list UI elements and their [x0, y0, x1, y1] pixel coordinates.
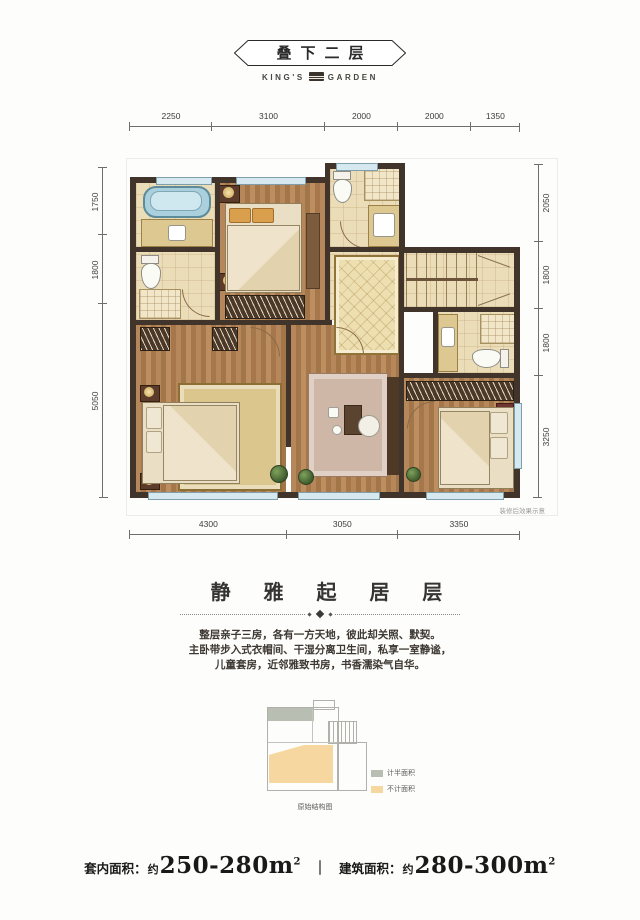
plant	[406, 467, 421, 482]
bookcase	[387, 377, 399, 475]
lamp-icon	[223, 187, 234, 198]
wardrobe	[140, 327, 170, 351]
schematic-outline	[337, 742, 367, 791]
dim-label: 3100	[212, 111, 325, 127]
dim-chain-top: 2250 3100 2000 2000 1350	[130, 111, 520, 127]
wall	[399, 307, 520, 312]
shower-area	[364, 167, 400, 201]
floor-title: 叠下二层	[234, 40, 406, 66]
brand-right: GARDEN	[328, 73, 378, 82]
legend: 计半面积 不计面积	[371, 768, 415, 800]
floor-title-frame: 叠下二层	[234, 40, 406, 66]
legend-swatch-excluded	[371, 786, 383, 793]
window	[156, 177, 212, 185]
divider-ornament-icon	[316, 610, 324, 618]
bed-blanket	[440, 411, 490, 485]
schematic-caption: 原始结构图	[240, 802, 390, 812]
build-area-value: 280-300m2	[415, 852, 556, 879]
stair-rail	[406, 278, 478, 281]
wall	[215, 177, 220, 325]
dim-label: 2000	[325, 111, 398, 127]
legend-row: 不计面积	[371, 784, 415, 794]
dim-tick	[533, 497, 542, 498]
schematic-outline	[267, 707, 339, 791]
dim-tick	[519, 123, 520, 132]
pillow	[229, 208, 251, 223]
dim-label: 1800	[538, 309, 553, 376]
bathtub-basin	[150, 191, 202, 211]
wall	[130, 247, 220, 252]
pillow	[146, 431, 162, 453]
bed-blanket	[163, 405, 237, 481]
render-note: 装修后效果示意	[420, 505, 545, 515]
dim-label: 2000	[398, 111, 471, 127]
shower-area	[480, 314, 515, 344]
divider-ornament-icon	[328, 612, 332, 616]
window	[148, 492, 278, 500]
wall	[325, 163, 330, 325]
dim-label: 2250	[130, 111, 212, 127]
window	[426, 492, 504, 500]
description: 整层亲子三房，各有一方天地，彼此却关照、默契。 主卧带步入式衣帽间、干湿分离卫生…	[0, 628, 640, 673]
window	[298, 492, 380, 500]
dim-chain-right: 2050 1800 1800 3250	[538, 165, 553, 498]
wall	[286, 325, 291, 447]
window	[236, 177, 306, 185]
footer-divider: ｜	[313, 858, 327, 878]
sink-basin	[168, 225, 186, 241]
plant	[270, 465, 288, 483]
dim-label: 1800	[538, 242, 553, 309]
window	[514, 403, 522, 469]
inner-area-label: 套内面积：	[84, 858, 147, 877]
plant	[298, 469, 314, 485]
pillow	[146, 407, 162, 429]
brand-line: KING'SGARDEN	[0, 72, 640, 82]
schematic-outline	[313, 700, 335, 710]
wall	[325, 247, 404, 252]
area-footer: 套内面积： 约 250-280m2 ｜ 建筑面积： 约 280-300m2	[0, 852, 640, 879]
approx-mark: 约	[403, 861, 414, 877]
dim-label: 2050	[538, 165, 553, 242]
wall	[130, 177, 136, 498]
dim-label: 3250	[538, 376, 553, 498]
dim-tick	[519, 531, 520, 540]
pillow	[252, 208, 274, 223]
dim-label: 3050	[287, 519, 398, 535]
dotted-line	[180, 614, 305, 615]
pillow	[490, 437, 508, 459]
approx-mark: 约	[148, 861, 159, 877]
build-area-label: 建筑面积：	[339, 858, 402, 877]
window	[336, 163, 378, 171]
schematic-line	[268, 742, 337, 743]
wall	[433, 312, 438, 377]
dim-label: 5050	[88, 304, 103, 498]
schematic-stairs	[328, 721, 357, 744]
wardrobe	[406, 381, 514, 401]
description-line: 主卧带步入式衣帽间、干湿分离卫生间，私享一室静谧，	[0, 643, 640, 658]
inner-area-value: 250-280m2	[160, 852, 301, 879]
brand-left: KING'S	[262, 73, 305, 82]
section-divider	[180, 611, 460, 617]
toilet-tank	[500, 349, 509, 368]
header: 叠下二层	[0, 40, 640, 66]
dresser	[306, 213, 320, 289]
legend-label: 不计面积	[387, 784, 415, 794]
wall	[399, 163, 405, 253]
desk-item	[328, 407, 339, 418]
divider-ornament-icon	[307, 612, 311, 616]
brand-logo-icon	[309, 72, 324, 81]
schematic-line	[312, 708, 313, 742]
dotted-line	[335, 614, 460, 615]
bed-blanket	[227, 225, 300, 291]
shower-area	[139, 289, 181, 319]
dim-label: 1350	[471, 111, 520, 127]
description-line: 儿童套房，近邻雅致书房，书香濡染气自华。	[0, 658, 640, 673]
dim-label: 3350	[398, 519, 520, 535]
dim-tick	[99, 497, 108, 498]
brochure-page: 叠下二层 KING'SGARDEN 2250 3100 2000 2000 13…	[0, 0, 640, 920]
wall	[130, 320, 332, 325]
wall	[399, 373, 520, 378]
legend-swatch-half	[371, 770, 383, 777]
chair	[358, 415, 380, 437]
dim-chain-bottom: 4300 3050 3350	[130, 519, 520, 535]
dim-label: 1800	[88, 235, 103, 304]
description-line: 整层亲子三房，各有一方天地，彼此却关照、默契。	[0, 628, 640, 643]
lamp-icon	[144, 387, 154, 397]
sink-basin	[373, 213, 395, 237]
desk-item	[332, 425, 342, 435]
wardrobe	[212, 327, 238, 351]
floor-plan	[130, 155, 520, 505]
dim-label: 4300	[130, 519, 287, 535]
wall	[402, 247, 520, 253]
pillow	[490, 412, 508, 434]
legend-row: 计半面积	[371, 768, 415, 778]
section-title: 静 雅 起 居 层	[0, 576, 640, 605]
dim-chain-left: 1750 1800 5050	[88, 168, 103, 498]
sink-basin	[441, 327, 455, 347]
dim-label: 1750	[88, 168, 103, 235]
legend-label: 计半面积	[387, 768, 415, 778]
wardrobe	[225, 295, 305, 319]
